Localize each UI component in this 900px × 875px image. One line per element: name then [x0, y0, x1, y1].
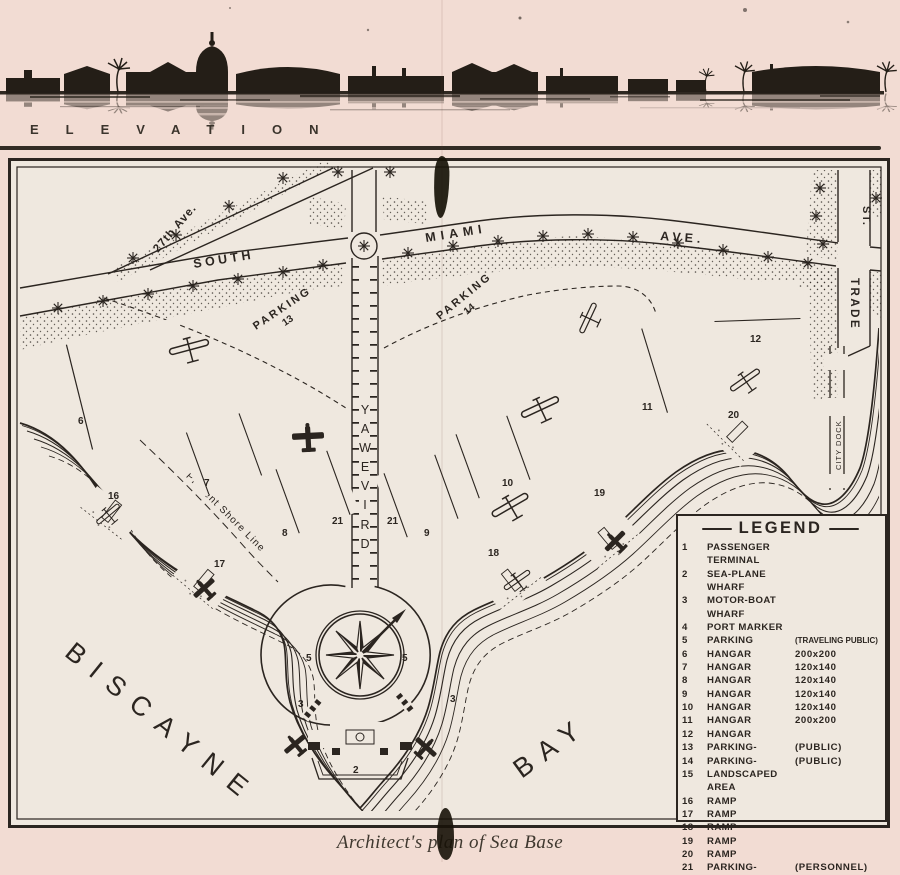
street-st-label: ST.	[860, 206, 872, 226]
city-dock: CITY DOCK	[822, 346, 848, 490]
legend-item-num: 5	[682, 634, 707, 647]
street-trade-label: TRADE	[848, 278, 860, 330]
map-number-20: 20	[728, 410, 740, 421]
legend-title-dash	[702, 528, 732, 530]
legend-item-num: 1	[682, 541, 707, 568]
map-number-12: 12	[750, 334, 762, 345]
legend-item-label: RAMP	[707, 795, 795, 808]
map-number-9: 9	[424, 528, 430, 539]
legend-item: 10HANGAR120x140	[682, 701, 879, 714]
legend-item-detail: 200x200	[795, 714, 879, 727]
legend-item-num: 4	[682, 621, 707, 634]
map-number-5b: 5	[402, 653, 408, 664]
map-number-21b: 21	[387, 516, 399, 527]
legend-item-detail	[795, 808, 879, 821]
legend-item-detail	[795, 594, 879, 621]
fold-line	[441, 0, 443, 862]
legend-item: 4PORT MARKER	[682, 621, 879, 634]
legend-item-label: HANGAR	[707, 728, 795, 741]
hangar-9	[375, 451, 468, 540]
legend-item-label: MOTOR-BOAT WHARF	[707, 594, 795, 621]
seaplane-icon	[518, 390, 564, 429]
legend-item-label: HANGAR	[707, 674, 795, 687]
legend-item-detail	[795, 768, 879, 795]
legend-item: 9HANGAR120x140	[682, 688, 879, 701]
legend-item-label: HANGAR	[707, 648, 795, 661]
legend-item-num: 11	[682, 714, 707, 727]
legend-item-detail: (PERSONNEL)	[795, 861, 879, 874]
compass-rose-icon	[319, 609, 406, 696]
legend-item-label: HANGAR	[707, 714, 795, 727]
legend-item-detail	[795, 728, 879, 741]
ramp-18	[483, 555, 546, 615]
parking-14-label: PARKING 14	[434, 271, 502, 333]
legend-item-num: 10	[682, 701, 707, 714]
seaplane-icon	[488, 487, 535, 528]
legend-item-label: PASSENGER TERMINAL	[707, 541, 795, 568]
map-number-16: 16	[108, 491, 120, 502]
legend-item-label: HANGAR	[707, 701, 795, 714]
city-dock-label: CITY DOCK	[834, 420, 843, 470]
legend-item-detail	[795, 568, 879, 595]
fold-mark	[437, 808, 454, 860]
map-number-11: 11	[642, 402, 653, 413]
map-number-21a: 21	[332, 516, 344, 527]
legend-item-label: HANGAR	[707, 661, 795, 674]
legend-item: 2SEA-PLANE WHARF	[682, 568, 879, 595]
legend-item-num: 13	[682, 741, 707, 754]
hangar-6	[53, 317, 203, 453]
legend-item-label: PORT MARKER	[707, 621, 795, 634]
legend-item-detail	[795, 541, 879, 568]
map-number-8: 8	[282, 528, 288, 539]
legend-item-label: PARKING-	[707, 861, 795, 874]
legend-item-detail: 120x140	[795, 701, 879, 714]
legend-box: LEGEND 1PASSENGER TERMINAL 2SEA-PLANE WH…	[676, 514, 887, 822]
legend-item: 13PARKING-(PUBLIC)	[682, 741, 879, 754]
legend-item-num: 21	[682, 861, 707, 874]
seaplane-icon	[727, 364, 767, 400]
legend-item-num: 9	[682, 688, 707, 701]
bay-label: BAY	[507, 710, 593, 784]
street-south-label: SOUTH	[192, 248, 255, 271]
legend-item-num: 7	[682, 661, 707, 674]
legend-item-num: 12	[682, 728, 707, 741]
passenger-terminal	[308, 712, 412, 763]
legend-item: 7HANGAR120x140	[682, 661, 879, 674]
legend-item: 21PARKING-(PERSONNEL)	[682, 861, 879, 874]
legend-item-detail: 120x140	[795, 688, 879, 701]
hangar-8	[267, 447, 360, 536]
street-miami-label: MIAMI	[424, 221, 487, 244]
motor-boat-wharf-left	[301, 692, 328, 721]
legend-item-num: 6	[682, 648, 707, 661]
seaplane-icon	[291, 422, 324, 453]
legend-item-label: HANGAR	[707, 688, 795, 701]
legend-title: LEGEND	[739, 519, 823, 538]
legend-item-num: 3	[682, 594, 707, 621]
map-number-18: 18	[488, 548, 500, 559]
seaplane-icon	[575, 300, 606, 337]
legend-item: 11HANGAR200x200	[682, 714, 879, 727]
map-number-3a: 3	[298, 699, 304, 710]
map-number-5a: 5	[306, 653, 312, 664]
legend-item-num: 2	[682, 568, 707, 595]
legend-item-label: PARKING-	[707, 755, 795, 768]
legend-item: 8HANGAR120x140	[682, 674, 879, 687]
legend-item-detail	[795, 621, 879, 634]
map-number-17: 17	[214, 559, 226, 570]
legend-item-label: SEA-PLANE WHARF	[707, 568, 795, 595]
map-number-2: 2	[353, 765, 359, 776]
driveway-label: Y A W E V I R D	[354, 401, 376, 554]
legend-title-dash	[829, 528, 859, 530]
elevation-label: ELEVATION	[30, 122, 345, 137]
map-number-19: 19	[594, 488, 606, 499]
legend-item-detail: 120x140	[795, 661, 879, 674]
map-number-10: 10	[502, 478, 514, 489]
hangar-11	[561, 323, 686, 438]
map-number-6: 6	[78, 416, 84, 427]
map-number-3b: 3	[450, 694, 456, 705]
hangar-10	[447, 412, 540, 501]
legend-item-label: RAMP	[707, 808, 795, 821]
legend-item: 12HANGAR	[682, 728, 879, 741]
legend-item: 3MOTOR-BOAT WHARF	[682, 594, 879, 621]
paper-specks	[229, 7, 849, 31]
legend-item-num: 8	[682, 674, 707, 687]
map-number-7: 7	[204, 478, 210, 489]
legend-item-num: 15	[682, 768, 707, 795]
svg-text:PARKING: PARKING	[434, 271, 494, 323]
legend-item: 6HANGAR200x200	[682, 648, 879, 661]
biscayne-label: BISCAYNE	[60, 636, 264, 809]
legend-item: 15LANDSCAPED AREA	[682, 768, 879, 795]
legend-item: 14PARKING-(PUBLIC)	[682, 755, 879, 768]
legend-item-detail	[795, 795, 879, 808]
legend-item-detail: 200x200	[795, 648, 879, 661]
legend-item-detail: 120x140	[795, 674, 879, 687]
legend-item-num: 16	[682, 795, 707, 808]
seaplane-icon	[279, 728, 314, 762]
legend-item-num: 14	[682, 755, 707, 768]
legend-item-detail: (TRAVELING PUBLIC)	[795, 634, 879, 647]
legend-item-label: PARKING	[707, 634, 795, 647]
legend-item: 5PARKING(TRAVELING PUBLIC)	[682, 634, 879, 647]
legend-item-detail: (PUBLIC)	[795, 741, 879, 754]
legend-item: 17RAMP	[682, 808, 879, 821]
legend-item-label: PARKING-	[707, 741, 795, 754]
legend-item-label: LANDSCAPED AREA	[707, 768, 795, 795]
legend-item-num: 17	[682, 808, 707, 821]
legend-item: 16RAMP	[682, 795, 879, 808]
legend-item-detail: (PUBLIC)	[795, 755, 879, 768]
hangar-12	[713, 281, 801, 334]
legend-item: 1PASSENGER TERMINAL	[682, 541, 879, 568]
site-plan: Present Shore Line	[8, 158, 890, 828]
